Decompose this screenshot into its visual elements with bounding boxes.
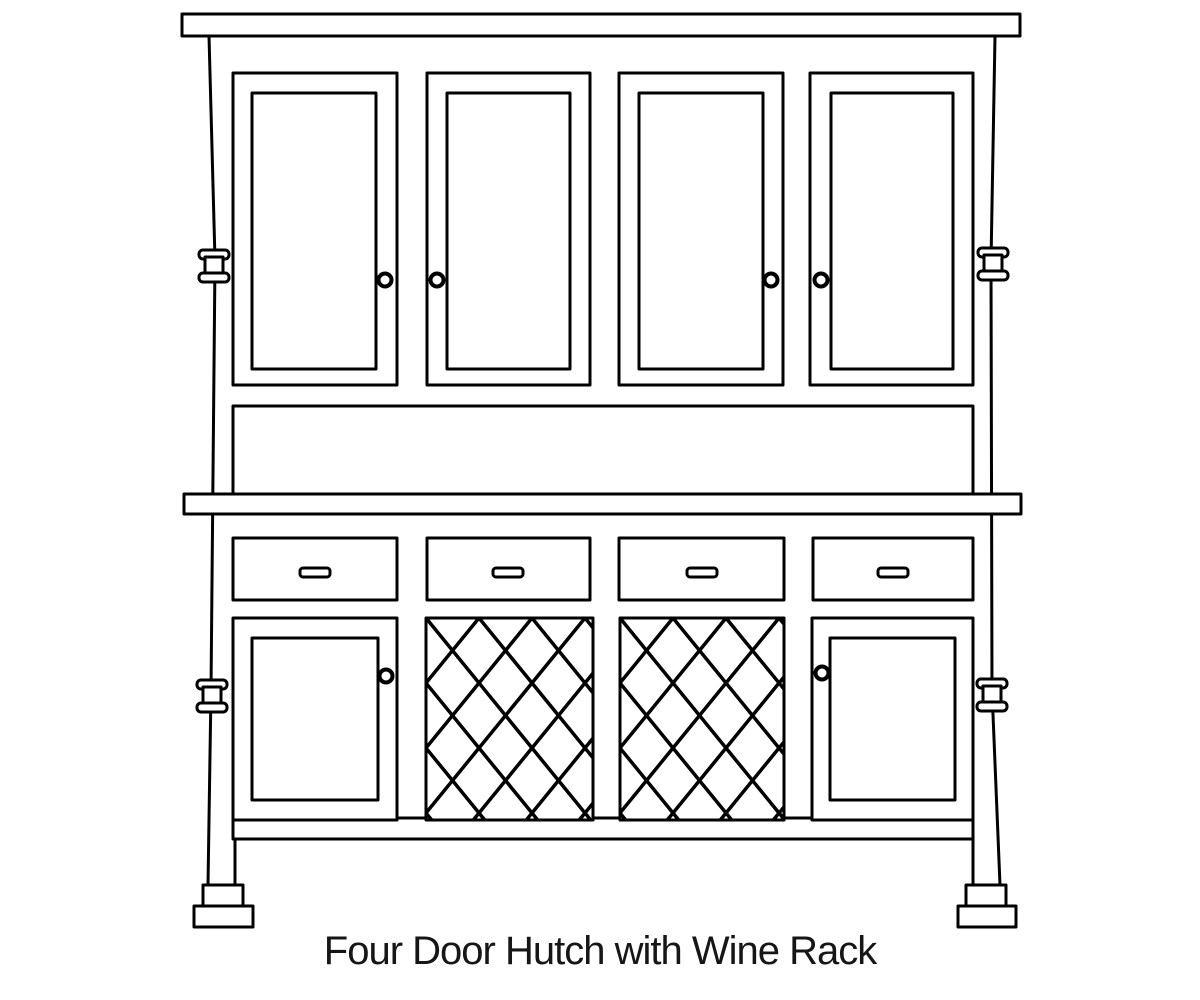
upper-door-2	[427, 73, 590, 385]
lower-door-right	[812, 618, 973, 820]
lower-door-left	[233, 618, 397, 820]
drawer-2	[427, 538, 590, 600]
lower-door-right-knob	[816, 667, 829, 680]
drawer-2-handle	[493, 568, 523, 577]
right-lower-spool	[977, 679, 1007, 711]
counter-board	[184, 494, 1021, 514]
upper-door-3	[619, 73, 783, 385]
upper-door-1-knob	[379, 274, 392, 287]
shelf-band	[233, 406, 973, 494]
upper-door-4-knob	[815, 274, 828, 287]
left-foot	[194, 885, 253, 927]
lower-door-left-knob	[380, 670, 393, 683]
drawer-1-handle	[300, 568, 330, 577]
hutch-line-drawing	[0, 0, 1200, 1000]
upper-door-2-knob	[431, 274, 444, 287]
crown-board	[182, 14, 1020, 36]
upper-door-1	[233, 73, 397, 385]
left-post	[208, 36, 215, 885]
figure-canvas: Four Door Hutch with Wine Rack	[0, 0, 1200, 1000]
drawing-root	[182, 14, 1021, 927]
figure-caption: Four Door Hutch with Wine Rack	[0, 928, 1200, 974]
upper-door-4	[810, 73, 973, 385]
upper-door-3-knob	[765, 274, 778, 287]
upper-door-1-panel	[252, 93, 376, 369]
drawer-3-handle	[687, 568, 717, 577]
right-foot	[958, 885, 1016, 927]
left-upper-spool	[199, 250, 229, 282]
drawer-4	[813, 538, 973, 600]
upper-door-4-panel	[831, 93, 953, 369]
right-upper-spool	[978, 248, 1008, 280]
upper-door-2-panel	[447, 93, 570, 369]
left-lower-spool	[197, 680, 227, 712]
right-post	[991, 36, 1000, 885]
drawer-3	[619, 538, 784, 600]
upper-door-3-panel	[639, 93, 763, 369]
drawer-1	[233, 538, 397, 600]
drawer-4-handle	[878, 568, 908, 577]
